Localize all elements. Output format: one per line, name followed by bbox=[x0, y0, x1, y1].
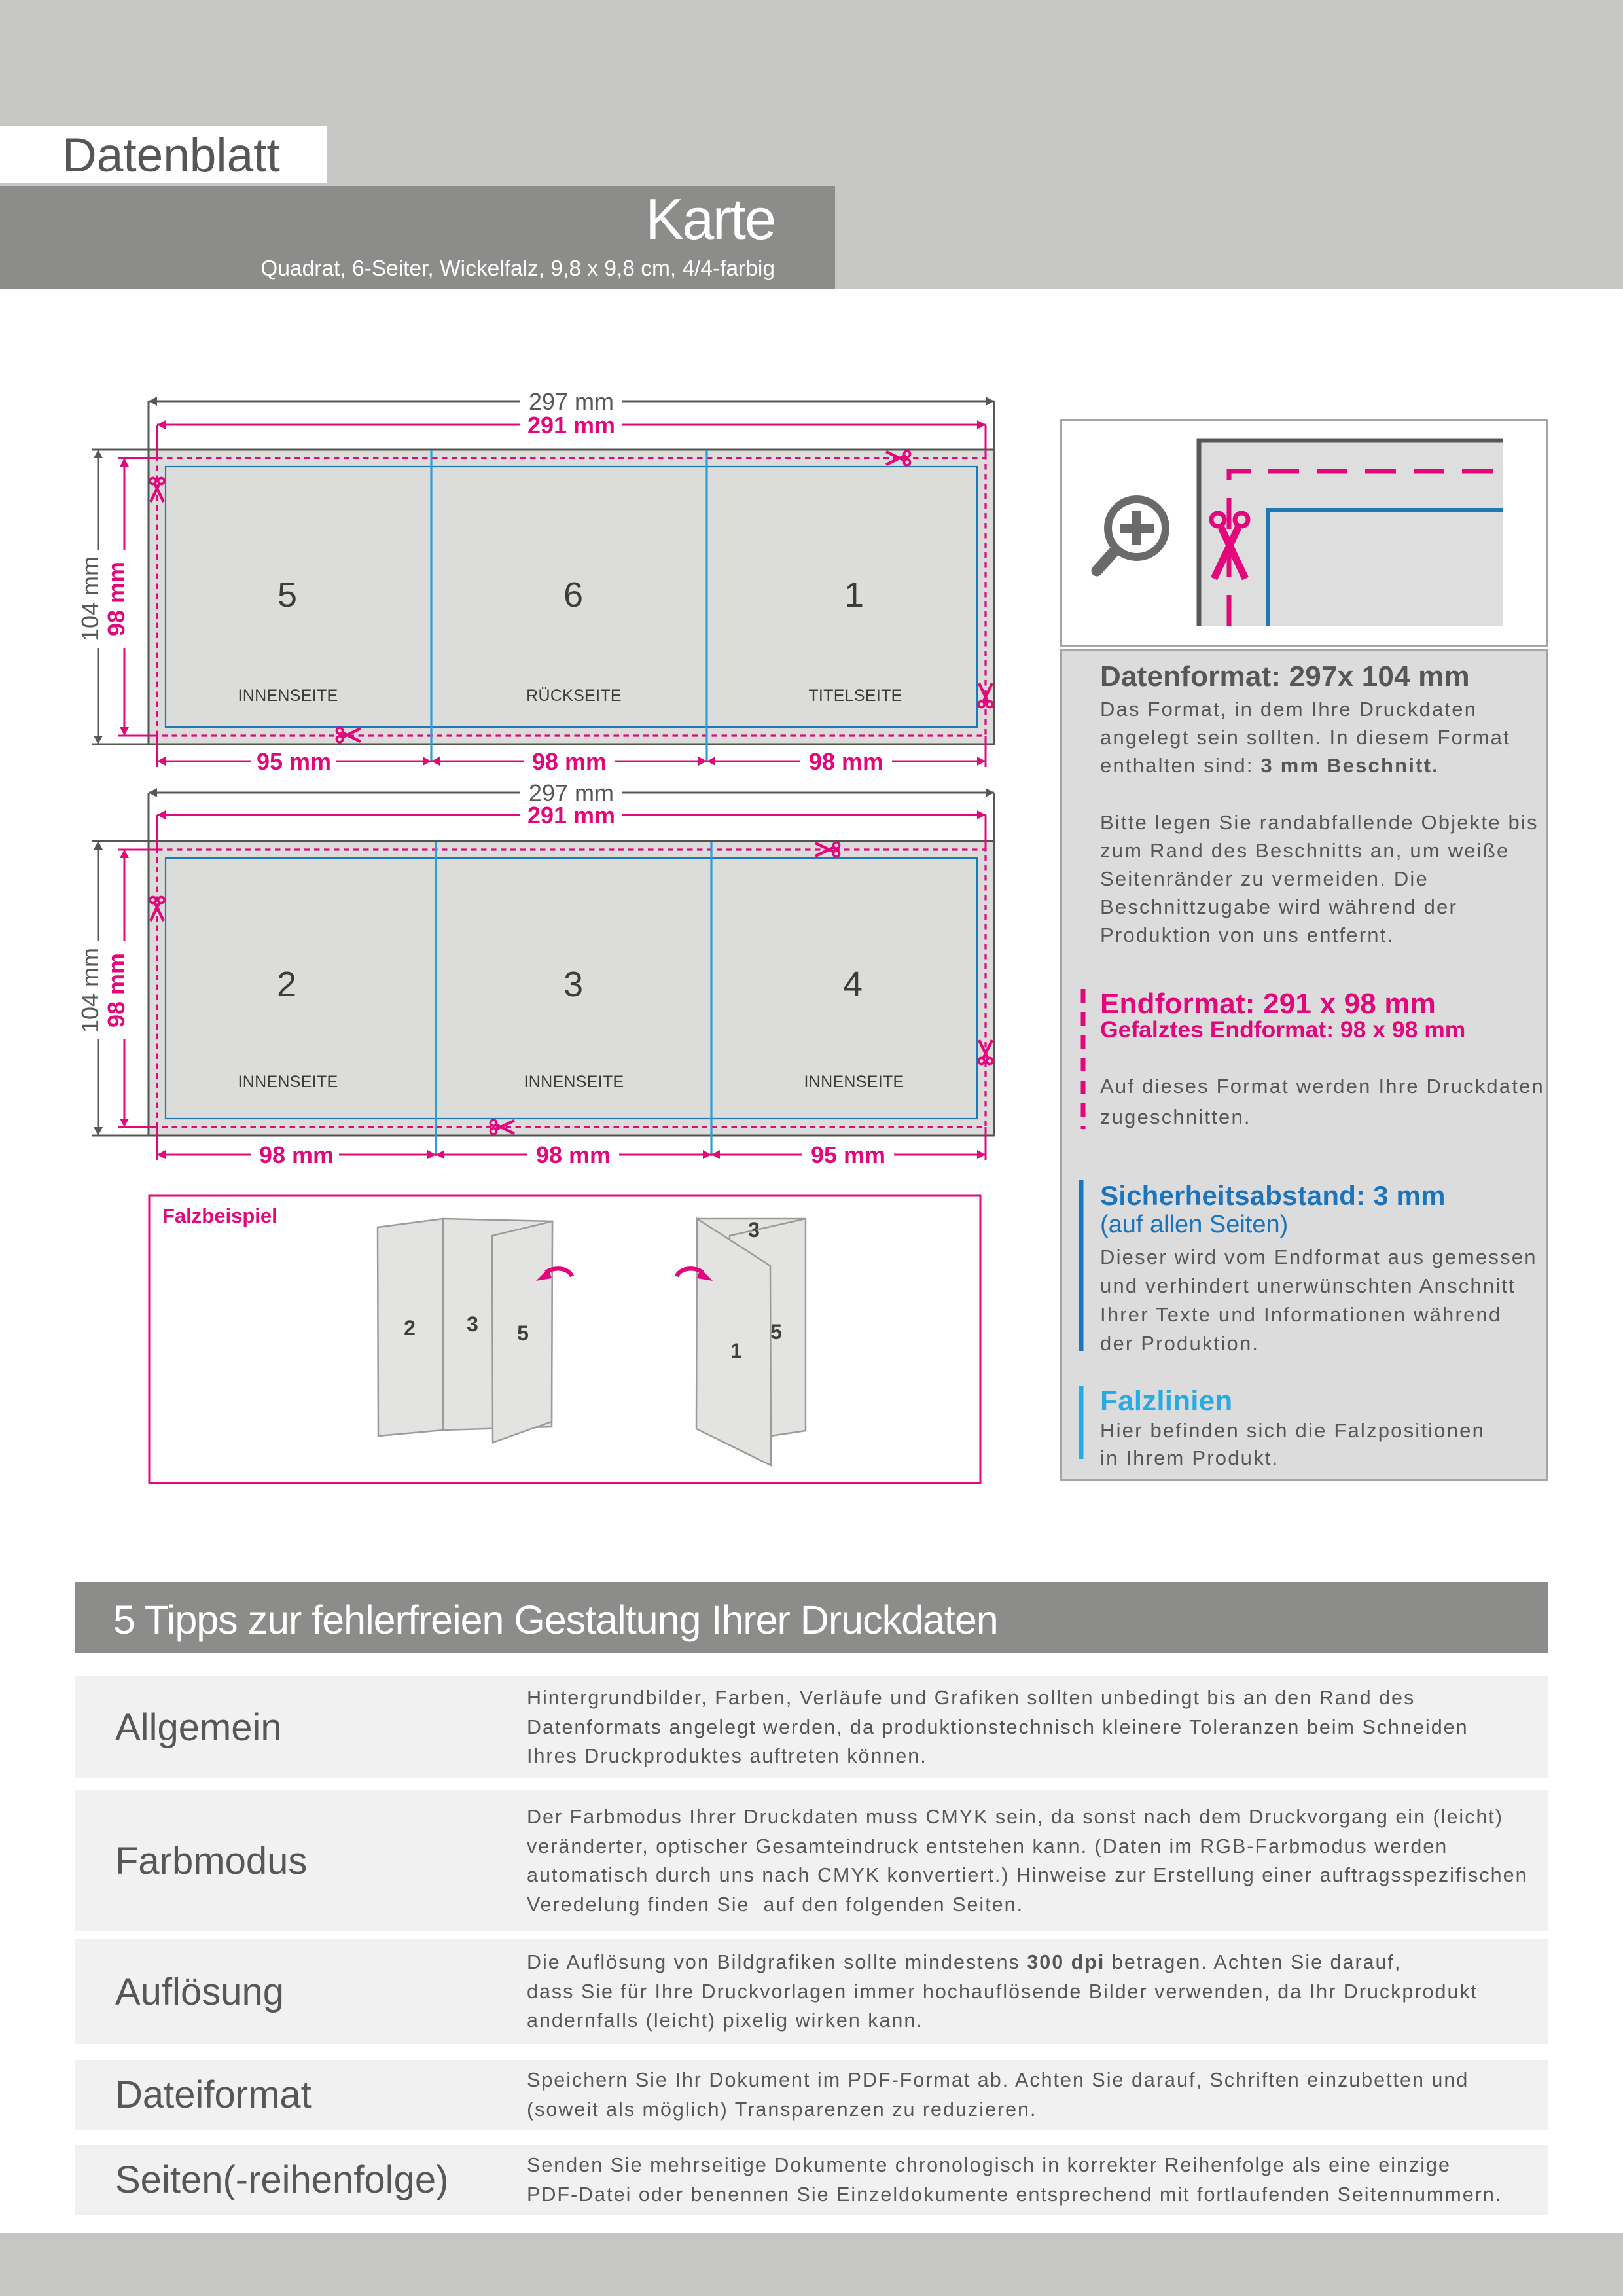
svg-text:3: 3 bbox=[467, 1312, 478, 1336]
svg-text:RÜCKSEITE: RÜCKSEITE bbox=[526, 687, 622, 705]
svg-text:5: 5 bbox=[770, 1320, 782, 1344]
svg-text:98 mm: 98 mm bbox=[259, 1141, 334, 1168]
svg-text:TITELSEITE: TITELSEITE bbox=[808, 687, 902, 705]
svg-text:98 mm: 98 mm bbox=[809, 748, 883, 775]
svg-text:2: 2 bbox=[277, 965, 296, 1004]
svg-text:95 mm: 95 mm bbox=[811, 1141, 885, 1168]
svg-text:1: 1 bbox=[844, 575, 864, 615]
svg-text:2: 2 bbox=[404, 1316, 416, 1340]
svg-text:INNENSEITE: INNENSEITE bbox=[238, 687, 338, 705]
svg-text:291 mm: 291 mm bbox=[527, 412, 615, 439]
svg-text:3: 3 bbox=[748, 1218, 760, 1242]
svg-text:3: 3 bbox=[563, 965, 583, 1004]
svg-text:1: 1 bbox=[730, 1339, 742, 1363]
svg-text:INNENSEITE: INNENSEITE bbox=[238, 1073, 338, 1091]
svg-text:98 mm: 98 mm bbox=[103, 953, 130, 1028]
svg-text:INNENSEITE: INNENSEITE bbox=[804, 1073, 904, 1091]
svg-text:95 mm: 95 mm bbox=[257, 748, 331, 775]
svg-text:5: 5 bbox=[517, 1321, 529, 1345]
svg-text:Falzbeispiel: Falzbeispiel bbox=[162, 1204, 277, 1227]
svg-text:104 mm: 104 mm bbox=[77, 948, 103, 1033]
svg-text:291 mm: 291 mm bbox=[527, 802, 615, 829]
svg-text:INNENSEITE: INNENSEITE bbox=[524, 1073, 624, 1091]
svg-text:98 mm: 98 mm bbox=[536, 1141, 611, 1168]
svg-text:297 mm: 297 mm bbox=[529, 388, 614, 415]
svg-text:4: 4 bbox=[843, 965, 863, 1004]
svg-text:98 mm: 98 mm bbox=[103, 562, 130, 636]
svg-text:5: 5 bbox=[277, 575, 297, 615]
svg-text:98 mm: 98 mm bbox=[532, 748, 607, 775]
svg-text:104 mm: 104 mm bbox=[77, 556, 103, 641]
svg-text:6: 6 bbox=[563, 575, 583, 615]
